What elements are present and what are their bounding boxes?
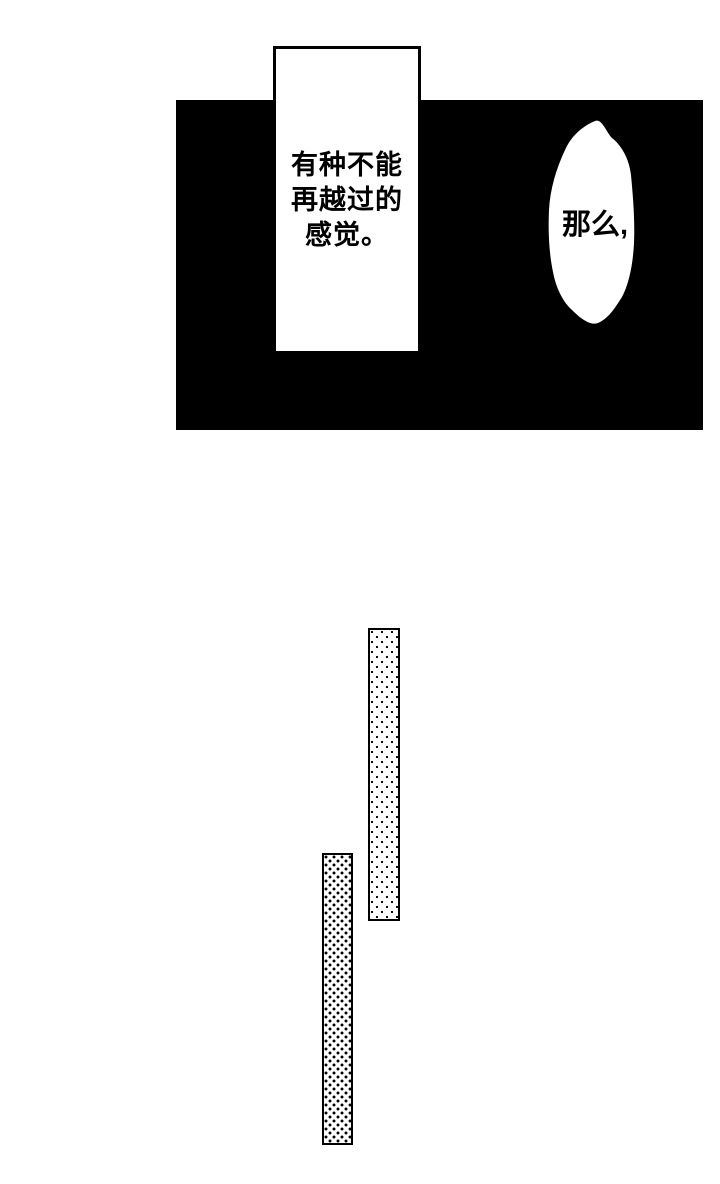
- screentone-bar-tall: [368, 628, 400, 921]
- caption-box: 有种不能 再越过的 感觉。: [273, 46, 421, 354]
- speech-bubble-text: 那么,: [543, 208, 647, 242]
- caption-text: 有种不能 再越过的 感觉。: [291, 148, 403, 253]
- manga-page: 那么, 有种不能 再越过的 感觉。: [0, 0, 720, 1184]
- screentone-bar-short: [322, 853, 353, 1145]
